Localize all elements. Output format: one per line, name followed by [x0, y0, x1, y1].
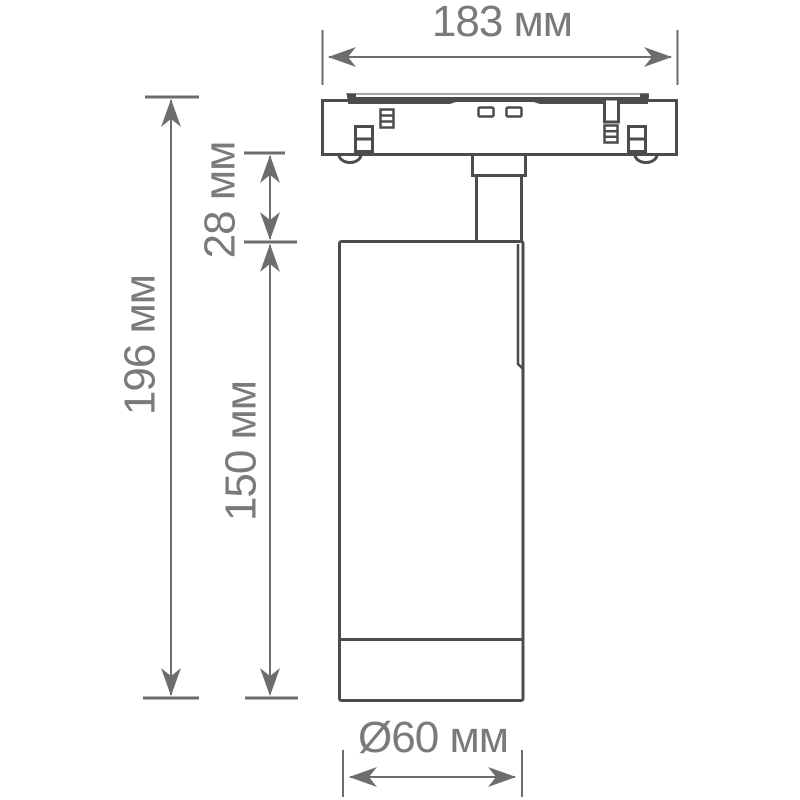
stem-neck	[477, 176, 522, 243]
clip-3cell-left	[381, 110, 394, 128]
dimension-track-width: 183 мм	[323, 0, 678, 85]
rail-notch-right	[605, 99, 619, 122]
dim-total-height-label: 196 мм	[116, 275, 165, 415]
screw-head-left	[339, 155, 361, 163]
track-adapter	[323, 94, 677, 163]
track-adapter-body	[323, 101, 677, 155]
rail-end-tab-right	[640, 94, 649, 99]
clip-3cell-right	[605, 126, 618, 143]
stem-collar	[473, 155, 526, 176]
drawing-canvas: 183 мм 196 мм 28 мм 150 мм	[0, 0, 800, 800]
dim-width-label: 183 мм	[432, 0, 572, 46]
dimension-body-diameter: Ø60 мм	[343, 713, 522, 797]
dim-body-height-label: 150 мм	[217, 381, 266, 521]
lamp-cylinder	[340, 242, 524, 701]
dim-stem-height-label: 28 мм	[196, 142, 245, 259]
dimension-total-height: 196 мм	[116, 97, 200, 698]
screw-head-right	[635, 155, 657, 163]
stem	[473, 155, 526, 243]
rail-end-tab-left	[347, 94, 356, 99]
technical-drawing: 183 мм 196 мм 28 мм 150 мм	[0, 0, 800, 800]
latch-2cell-left	[356, 127, 373, 152]
latch-2cell-right	[629, 127, 646, 152]
contact-slot-right	[507, 108, 522, 117]
dim-diameter-label: Ø60 мм	[358, 713, 508, 762]
contact-slot-left	[479, 108, 494, 117]
dimension-stem-height: 28 мм	[196, 142, 298, 259]
dimension-body-height: 150 мм	[217, 244, 299, 698]
lamp-body	[340, 242, 524, 701]
